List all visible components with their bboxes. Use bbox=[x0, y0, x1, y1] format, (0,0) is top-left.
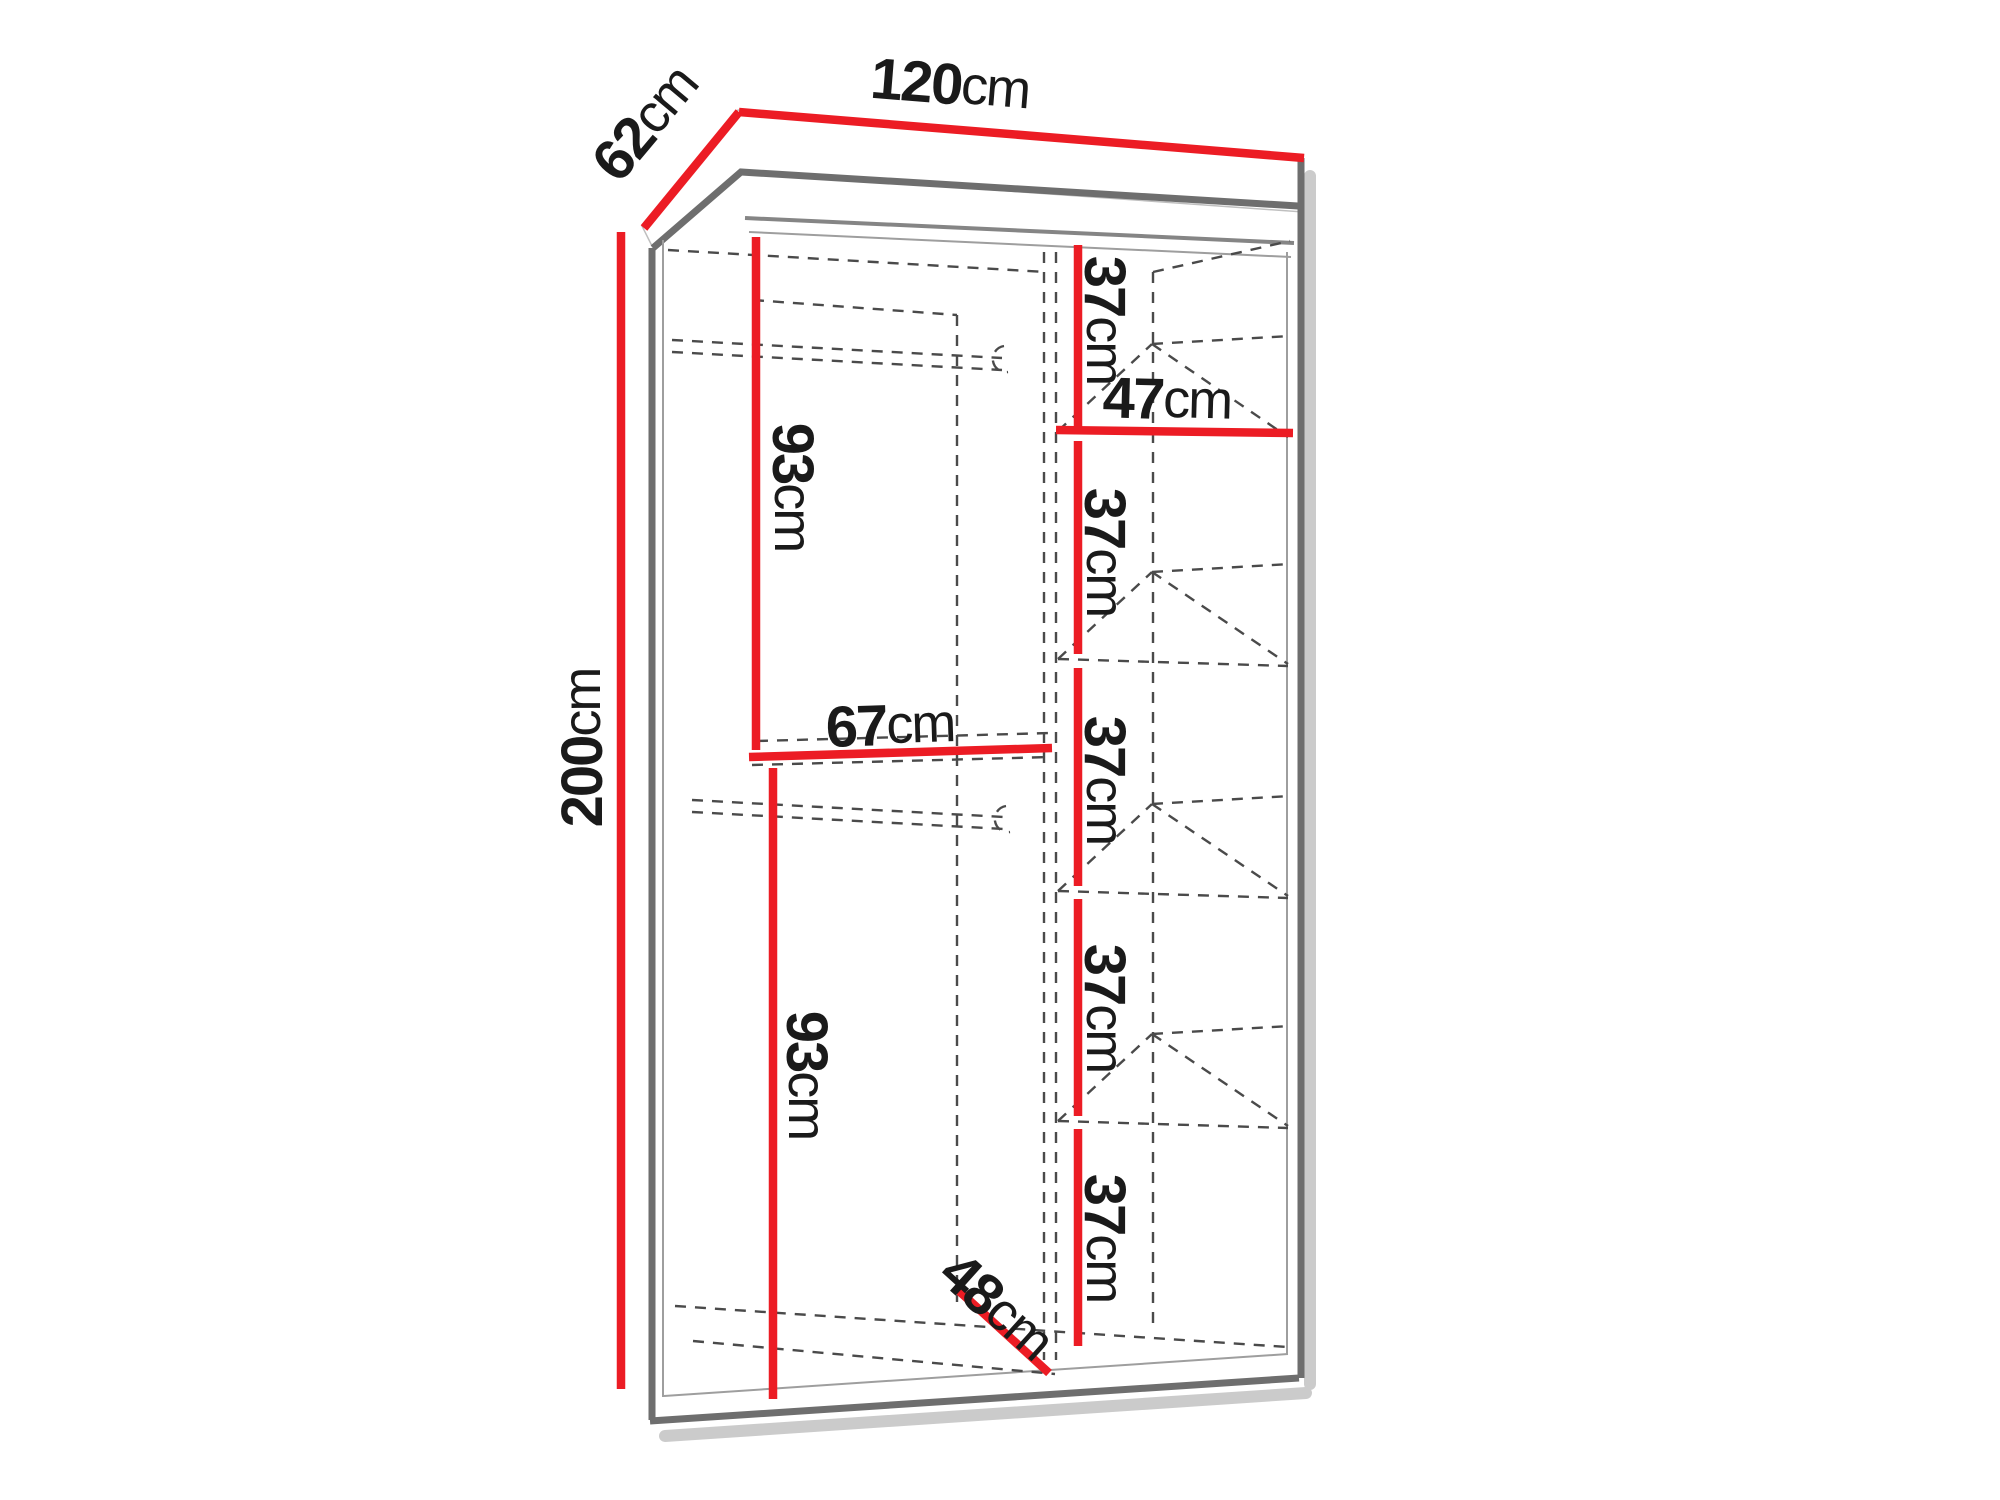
dimension-lines bbox=[621, 112, 1304, 1399]
shelf2-diagonal-dashed bbox=[1152, 572, 1288, 664]
width-120-value: 120 bbox=[868, 45, 964, 117]
cabinet-shadow bbox=[665, 176, 1310, 1436]
shelf3-back-dashed bbox=[1152, 796, 1290, 804]
wardrobe-dimension-diagram: 120cm 62cm 200cm 93cm 93cm 67cm 47cm 37c… bbox=[0, 0, 2000, 1500]
shelf-37-label-4: 37cm bbox=[1073, 944, 1138, 1073]
lower-93-unit: cm bbox=[777, 1071, 837, 1139]
shelf-37-unit-5: cm bbox=[1075, 1234, 1135, 1302]
shelf-37-label-1: 37cm bbox=[1073, 256, 1138, 385]
shelf-37-unit-4: cm bbox=[1075, 1004, 1135, 1072]
shelf3-diagonal-dashed bbox=[1152, 804, 1288, 896]
floor-front-line bbox=[664, 1354, 1288, 1396]
shelf-37-value-4: 37 bbox=[1073, 944, 1138, 1005]
left-ceiling-back-dashed bbox=[668, 250, 1046, 272]
shelf-37-value-2: 37 bbox=[1073, 488, 1138, 549]
depth-48-label: 48cm bbox=[928, 1239, 1067, 1373]
shelf-37-label-2: 37cm bbox=[1073, 488, 1138, 617]
shelf2-back-dashed bbox=[1152, 564, 1290, 572]
diagram-canvas: 120cm 62cm 200cm 93cm 93cm 67cm 47cm 37c… bbox=[0, 0, 2000, 1500]
cabinet-outline bbox=[650, 158, 1302, 1421]
width-47-unit: cm bbox=[1162, 369, 1232, 431]
shelf3-front-dashed bbox=[1058, 891, 1288, 898]
shelf2-front-dashed bbox=[1058, 659, 1288, 666]
shelf-37-label-5: 37cm bbox=[1073, 1174, 1138, 1303]
width-67-label: 67cm bbox=[825, 690, 955, 759]
upper-93-unit: cm bbox=[763, 483, 823, 551]
width-67-value: 67 bbox=[825, 693, 888, 760]
fascia-bottom-line bbox=[745, 218, 1294, 243]
shelf-37-unit-2: cm bbox=[1075, 548, 1135, 616]
shelf1-back-dashed bbox=[1152, 336, 1290, 344]
left-backwall-top-dashed bbox=[753, 300, 957, 315]
shelf-37-unit-3: cm bbox=[1075, 776, 1135, 844]
lower-93-value: 93 bbox=[775, 1011, 840, 1072]
shelf-37-label-3: 37cm bbox=[1073, 716, 1138, 845]
shelf4-back-dashed bbox=[1152, 1026, 1290, 1034]
shelf-37-unit-1: cm bbox=[1075, 316, 1135, 384]
door-track-line bbox=[749, 232, 1291, 257]
shelf4-front-dashed bbox=[1058, 1121, 1288, 1128]
upper-93-value: 93 bbox=[761, 423, 826, 484]
upper-93-label: 93cm bbox=[761, 423, 826, 552]
width-120-unit: cm bbox=[959, 55, 1032, 120]
height-200-value: 200 bbox=[550, 737, 615, 828]
shelf-37-value-3: 37 bbox=[1073, 716, 1138, 777]
shelf-37-value-1: 37 bbox=[1073, 256, 1138, 317]
front-fascia-lines bbox=[745, 218, 1294, 243]
width-67-unit: cm bbox=[885, 693, 955, 755]
width-47-line bbox=[1056, 430, 1293, 433]
shelf-37-value-5: 37 bbox=[1073, 1174, 1138, 1235]
lower-93-label: 93cm bbox=[775, 1011, 840, 1140]
height-200-unit: cm bbox=[552, 669, 612, 737]
width-120-label: 120cm bbox=[868, 45, 1031, 123]
height-200-label: 200cm bbox=[550, 669, 615, 828]
shelf4-diagonal-dashed bbox=[1152, 1034, 1288, 1126]
